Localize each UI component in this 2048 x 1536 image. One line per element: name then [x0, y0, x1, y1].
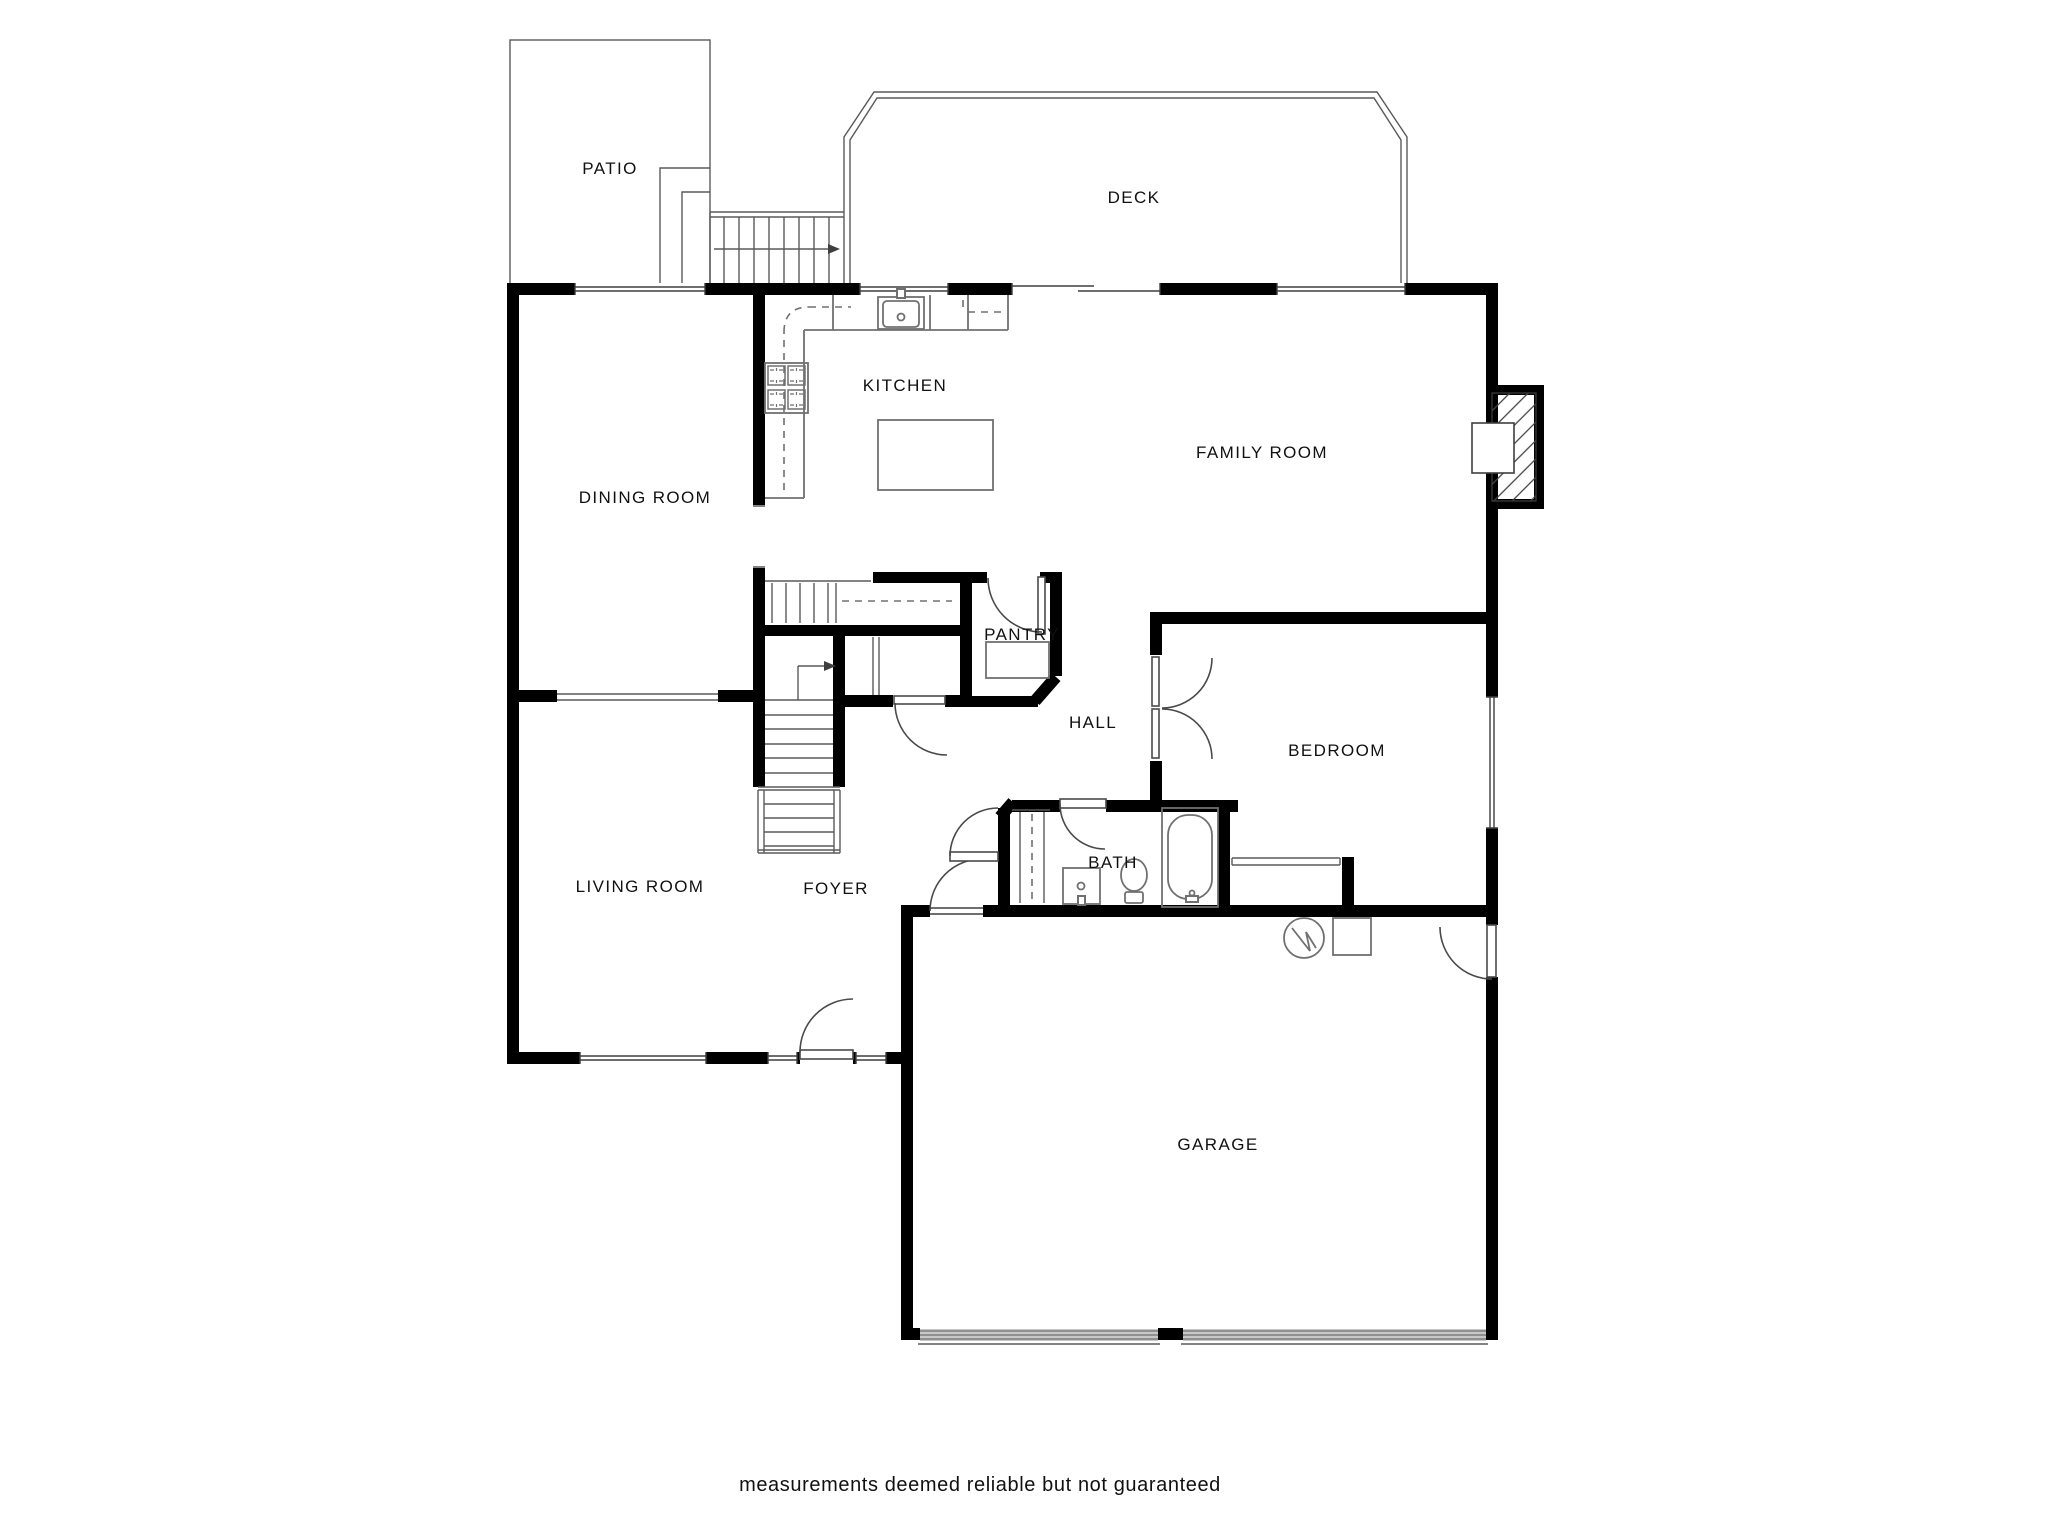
sliding-glass-door — [1012, 283, 1160, 295]
room-label-deck: DECK — [1108, 188, 1161, 207]
fireplace — [1472, 385, 1544, 509]
front-door — [800, 999, 853, 1064]
room-label-dining-room: DINING ROOM — [579, 488, 712, 507]
walls-layer — [507, 283, 1498, 1340]
family-room-window — [1277, 283, 1405, 295]
room-label-patio: PATIO — [582, 159, 638, 178]
kitchen-island — [878, 420, 993, 490]
dining-kitchen-cased-opening — [753, 506, 765, 567]
garage-side-door — [1440, 925, 1498, 979]
pantry-chamfer-wall — [1035, 677, 1056, 701]
windows-layer — [575, 283, 1498, 1064]
main-stairs — [758, 661, 840, 853]
living-room-window-large — [580, 1052, 706, 1064]
living-room-window-right — [856, 1052, 886, 1064]
pantry-shelves — [986, 642, 1049, 678]
dining-living-cased-opening — [557, 694, 718, 700]
bathtub — [1162, 808, 1218, 907]
water-heater — [1284, 918, 1324, 958]
understair-closet-door — [893, 695, 947, 755]
room-label-garage: GARAGE — [1177, 1135, 1258, 1154]
cooktop — [765, 363, 808, 413]
floor-plan-drawing: PATIO DECK KITCHEN DINING ROOM FAMILY RO… — [0, 0, 2048, 1536]
hall-door — [950, 808, 998, 861]
room-label-foyer: FOYER — [803, 879, 869, 898]
room-label-kitchen: KITCHEN — [863, 376, 947, 395]
disclaimer-text: measurements deemed reliable but not gua… — [739, 1474, 1221, 1496]
garage-door-left — [918, 1328, 1160, 1344]
dining-window — [575, 283, 705, 295]
room-label-hall: HALL — [1069, 713, 1117, 732]
vanity-sink — [1063, 868, 1100, 905]
fireplace-firebox — [1472, 423, 1514, 473]
kitchen-counter — [765, 295, 1008, 498]
patio-step-inner — [682, 192, 710, 284]
bath-door — [1060, 799, 1106, 849]
room-labels-layer: PATIO DECK KITCHEN DINING ROOM FAMILY RO… — [576, 159, 1386, 1154]
bedroom-double-doors — [1150, 655, 1212, 761]
basement-stairs — [765, 581, 952, 695]
furnace — [1333, 918, 1371, 955]
linen-closet — [1012, 810, 1050, 903]
room-label-bath: BATH — [1088, 853, 1138, 872]
deck-stairs-arrow-icon — [828, 244, 840, 254]
bedroom-closet-shelf — [1232, 858, 1340, 865]
doors-layer — [557, 506, 1498, 1064]
bedroom-window — [1486, 697, 1498, 828]
room-label-living-room: LIVING ROOM — [576, 877, 705, 896]
living-room-window-left — [768, 1052, 797, 1064]
garage-entry-door — [930, 859, 983, 917]
floor-plan-page: PATIO DECK KITCHEN DINING ROOM FAMILY RO… — [0, 0, 2048, 1536]
room-label-pantry: PANTRY — [984, 625, 1060, 644]
room-label-bedroom: BEDROOM — [1288, 741, 1386, 760]
garage-door-right — [1181, 1328, 1488, 1344]
bath-chamfer-wall — [1000, 802, 1013, 817]
room-label-family-room: FAMILY ROOM — [1196, 443, 1328, 462]
patio-step-outer — [660, 168, 710, 284]
deck-stairs — [710, 212, 844, 283]
